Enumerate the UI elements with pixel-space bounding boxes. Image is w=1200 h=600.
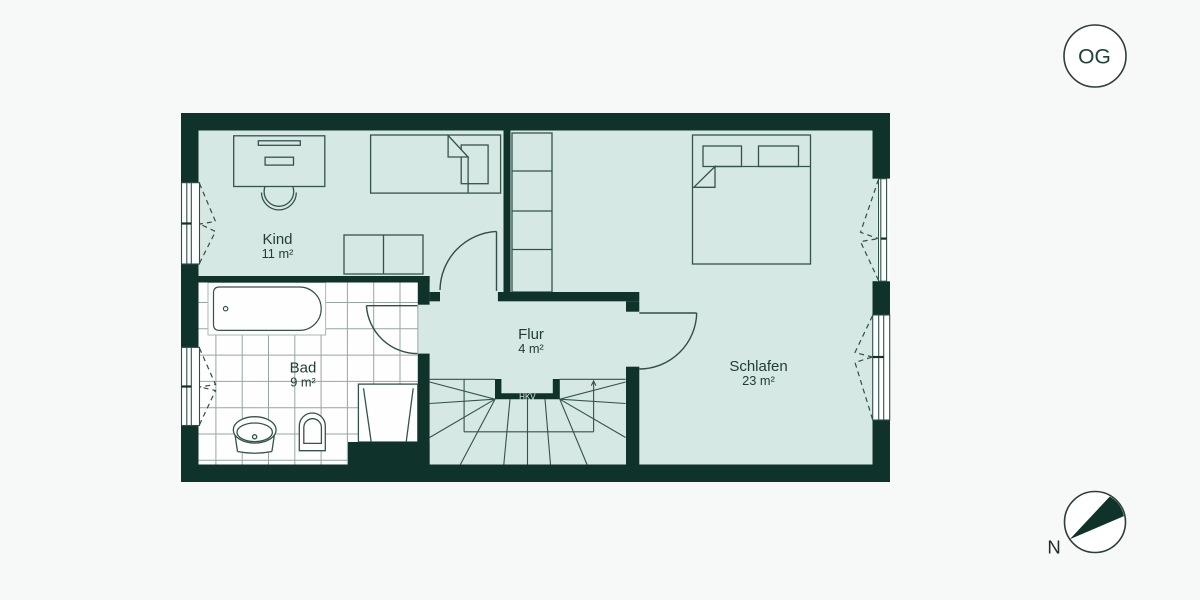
svg-text:HKV: HKV (519, 392, 536, 401)
svg-text:OG: OG (1078, 45, 1111, 68)
svg-text:11 m²: 11 m² (262, 246, 294, 261)
svg-text:9 m²: 9 m² (290, 375, 316, 390)
svg-text:23 m²: 23 m² (742, 373, 775, 388)
svg-text:N: N (1047, 536, 1060, 557)
svg-text:4 m²: 4 m² (518, 341, 544, 356)
